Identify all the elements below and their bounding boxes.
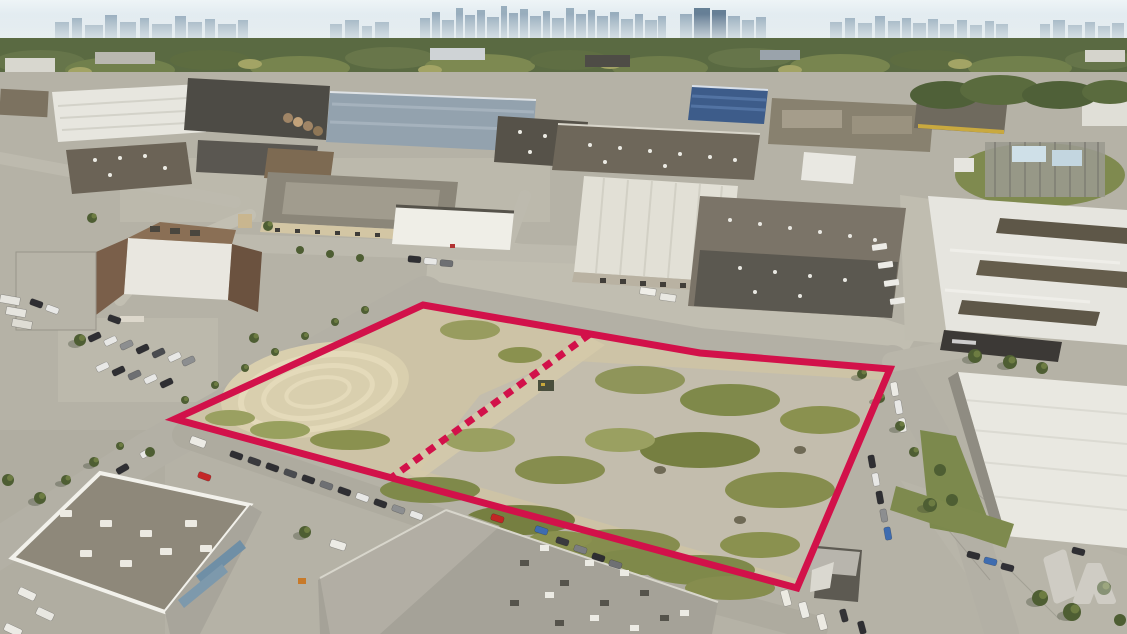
tree — [1036, 362, 1048, 374]
tree — [116, 442, 124, 450]
church-parking — [16, 252, 96, 330]
tree — [331, 318, 339, 326]
transformer-building — [1012, 146, 1046, 162]
tree — [87, 213, 97, 223]
tree — [263, 221, 273, 231]
tree — [301, 332, 309, 340]
tree — [2, 474, 14, 486]
car — [408, 255, 422, 263]
tree — [145, 447, 155, 457]
building-white-cube — [801, 152, 856, 184]
aerial-photo-canvas — [0, 0, 1127, 634]
aerial-photo — [0, 0, 1127, 634]
building-gable-house — [810, 546, 862, 602]
building-charcoal-long — [688, 196, 906, 318]
church-tower — [238, 214, 252, 228]
tree — [361, 306, 369, 314]
tree — [909, 447, 919, 457]
transformer-building — [1052, 150, 1082, 166]
tree — [271, 348, 279, 356]
tree — [241, 364, 249, 372]
car — [424, 257, 438, 265]
building-brown-topleft — [0, 89, 49, 117]
building-white-warehouse-left — [52, 84, 206, 142]
tree — [1114, 614, 1126, 626]
red-door — [450, 244, 455, 248]
car — [440, 259, 454, 267]
substation-shed — [954, 158, 974, 172]
tree — [181, 396, 189, 404]
tree — [211, 381, 219, 389]
tree — [249, 333, 259, 343]
building-white-small — [392, 206, 514, 250]
forklift — [298, 578, 306, 584]
